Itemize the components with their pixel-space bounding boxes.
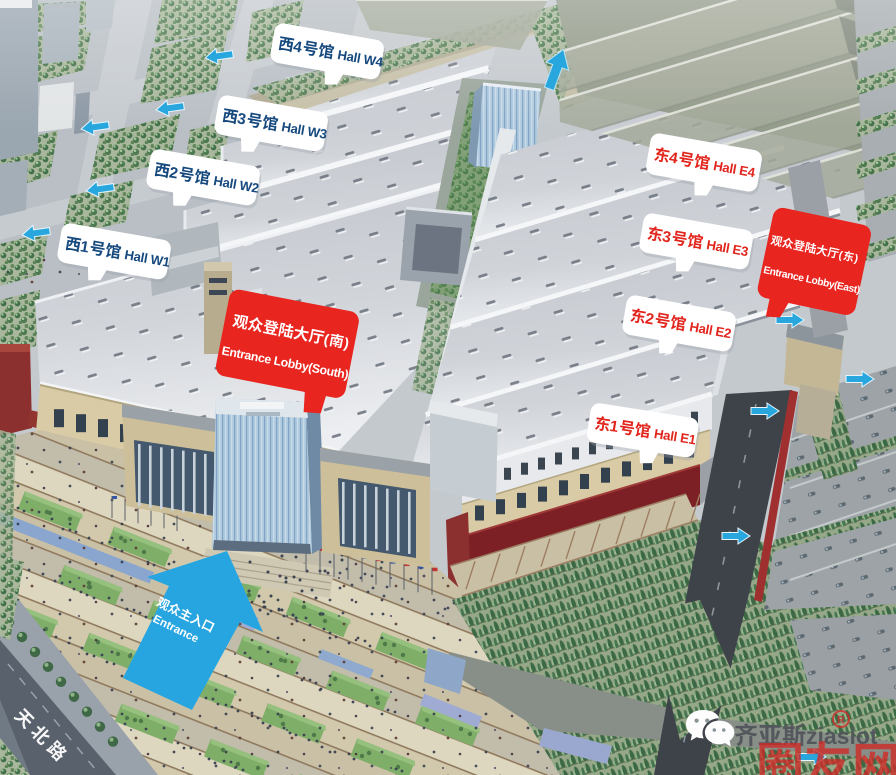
- svg-text:R: R: [837, 715, 845, 727]
